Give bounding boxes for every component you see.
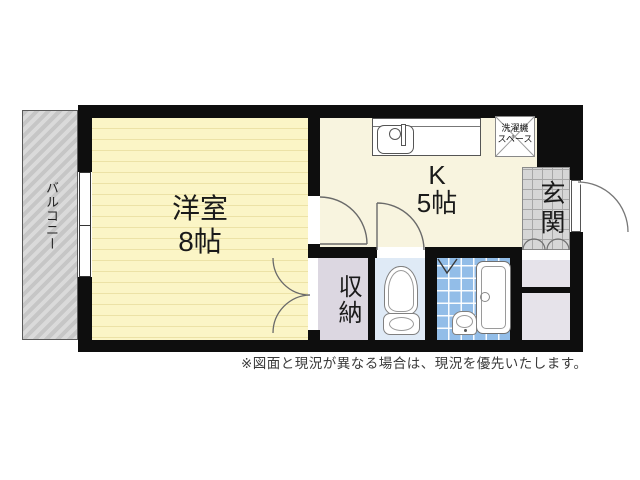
western-room-size: 8帖 [92, 225, 308, 258]
wall-corner-block [537, 105, 583, 167]
shoe-cabinet-lower [522, 293, 570, 340]
faucet-base-icon [389, 128, 401, 140]
entrance-label: 玄関 [533, 170, 569, 248]
kitchen-name: K [377, 161, 497, 189]
storage-label: 収納 [330, 263, 365, 337]
toilet-tank-lid [389, 317, 414, 331]
wall-right-lower [570, 232, 583, 340]
western-room-label: 洋室 8帖 [92, 192, 308, 258]
front-door-arc [578, 182, 628, 232]
wall-western-closet-bottom [308, 330, 320, 340]
western-room-name: 洋室 [92, 192, 308, 225]
wall-bottom [78, 340, 583, 352]
wall-shoebox-divider [522, 287, 570, 293]
kitchen-size: 5帖 [377, 189, 497, 217]
kitchen-label: K 5帖 [377, 161, 497, 217]
washer-space-label: 洗濯機 スペース [495, 123, 535, 145]
faucet-spout-icon [401, 124, 406, 146]
entrance-step [522, 250, 570, 260]
wall-kitchen-row-right [425, 247, 522, 258]
bath-sink-basin [456, 315, 473, 328]
balcony-window [79, 172, 91, 277]
wall-bath-entrance [510, 258, 522, 340]
toilet-tank [383, 313, 420, 335]
balcony-label: バルコニー [42, 181, 61, 253]
front-door-leaf [571, 180, 581, 232]
bath-sink [452, 311, 477, 335]
window-sash-divider [79, 225, 91, 226]
wall-western-kitchen-upper [308, 118, 320, 196]
bath-sink-drain-icon [464, 329, 467, 332]
wall-toilet-bath [425, 258, 437, 340]
shoe-cabinet-upper [522, 260, 570, 287]
disclaimer-text: ※図面と現況が異なる場合は、現況を優先いたします。 [241, 352, 587, 372]
bathtub [476, 261, 511, 334]
wall-top [78, 105, 537, 118]
wall-closet-toilet [368, 258, 375, 340]
wall-right-upper [570, 167, 583, 180]
floorplan-page: { "plan_type": "apartment-floorplan", "r… [0, 0, 640, 480]
toilet-seat-line [388, 270, 414, 312]
kitchen-counter [372, 118, 481, 156]
wall-kitchen-row-left [308, 247, 377, 258]
toilet-bowl [384, 266, 418, 316]
bathtub-drain-icon [480, 292, 490, 302]
wall-left-upper [78, 105, 92, 172]
